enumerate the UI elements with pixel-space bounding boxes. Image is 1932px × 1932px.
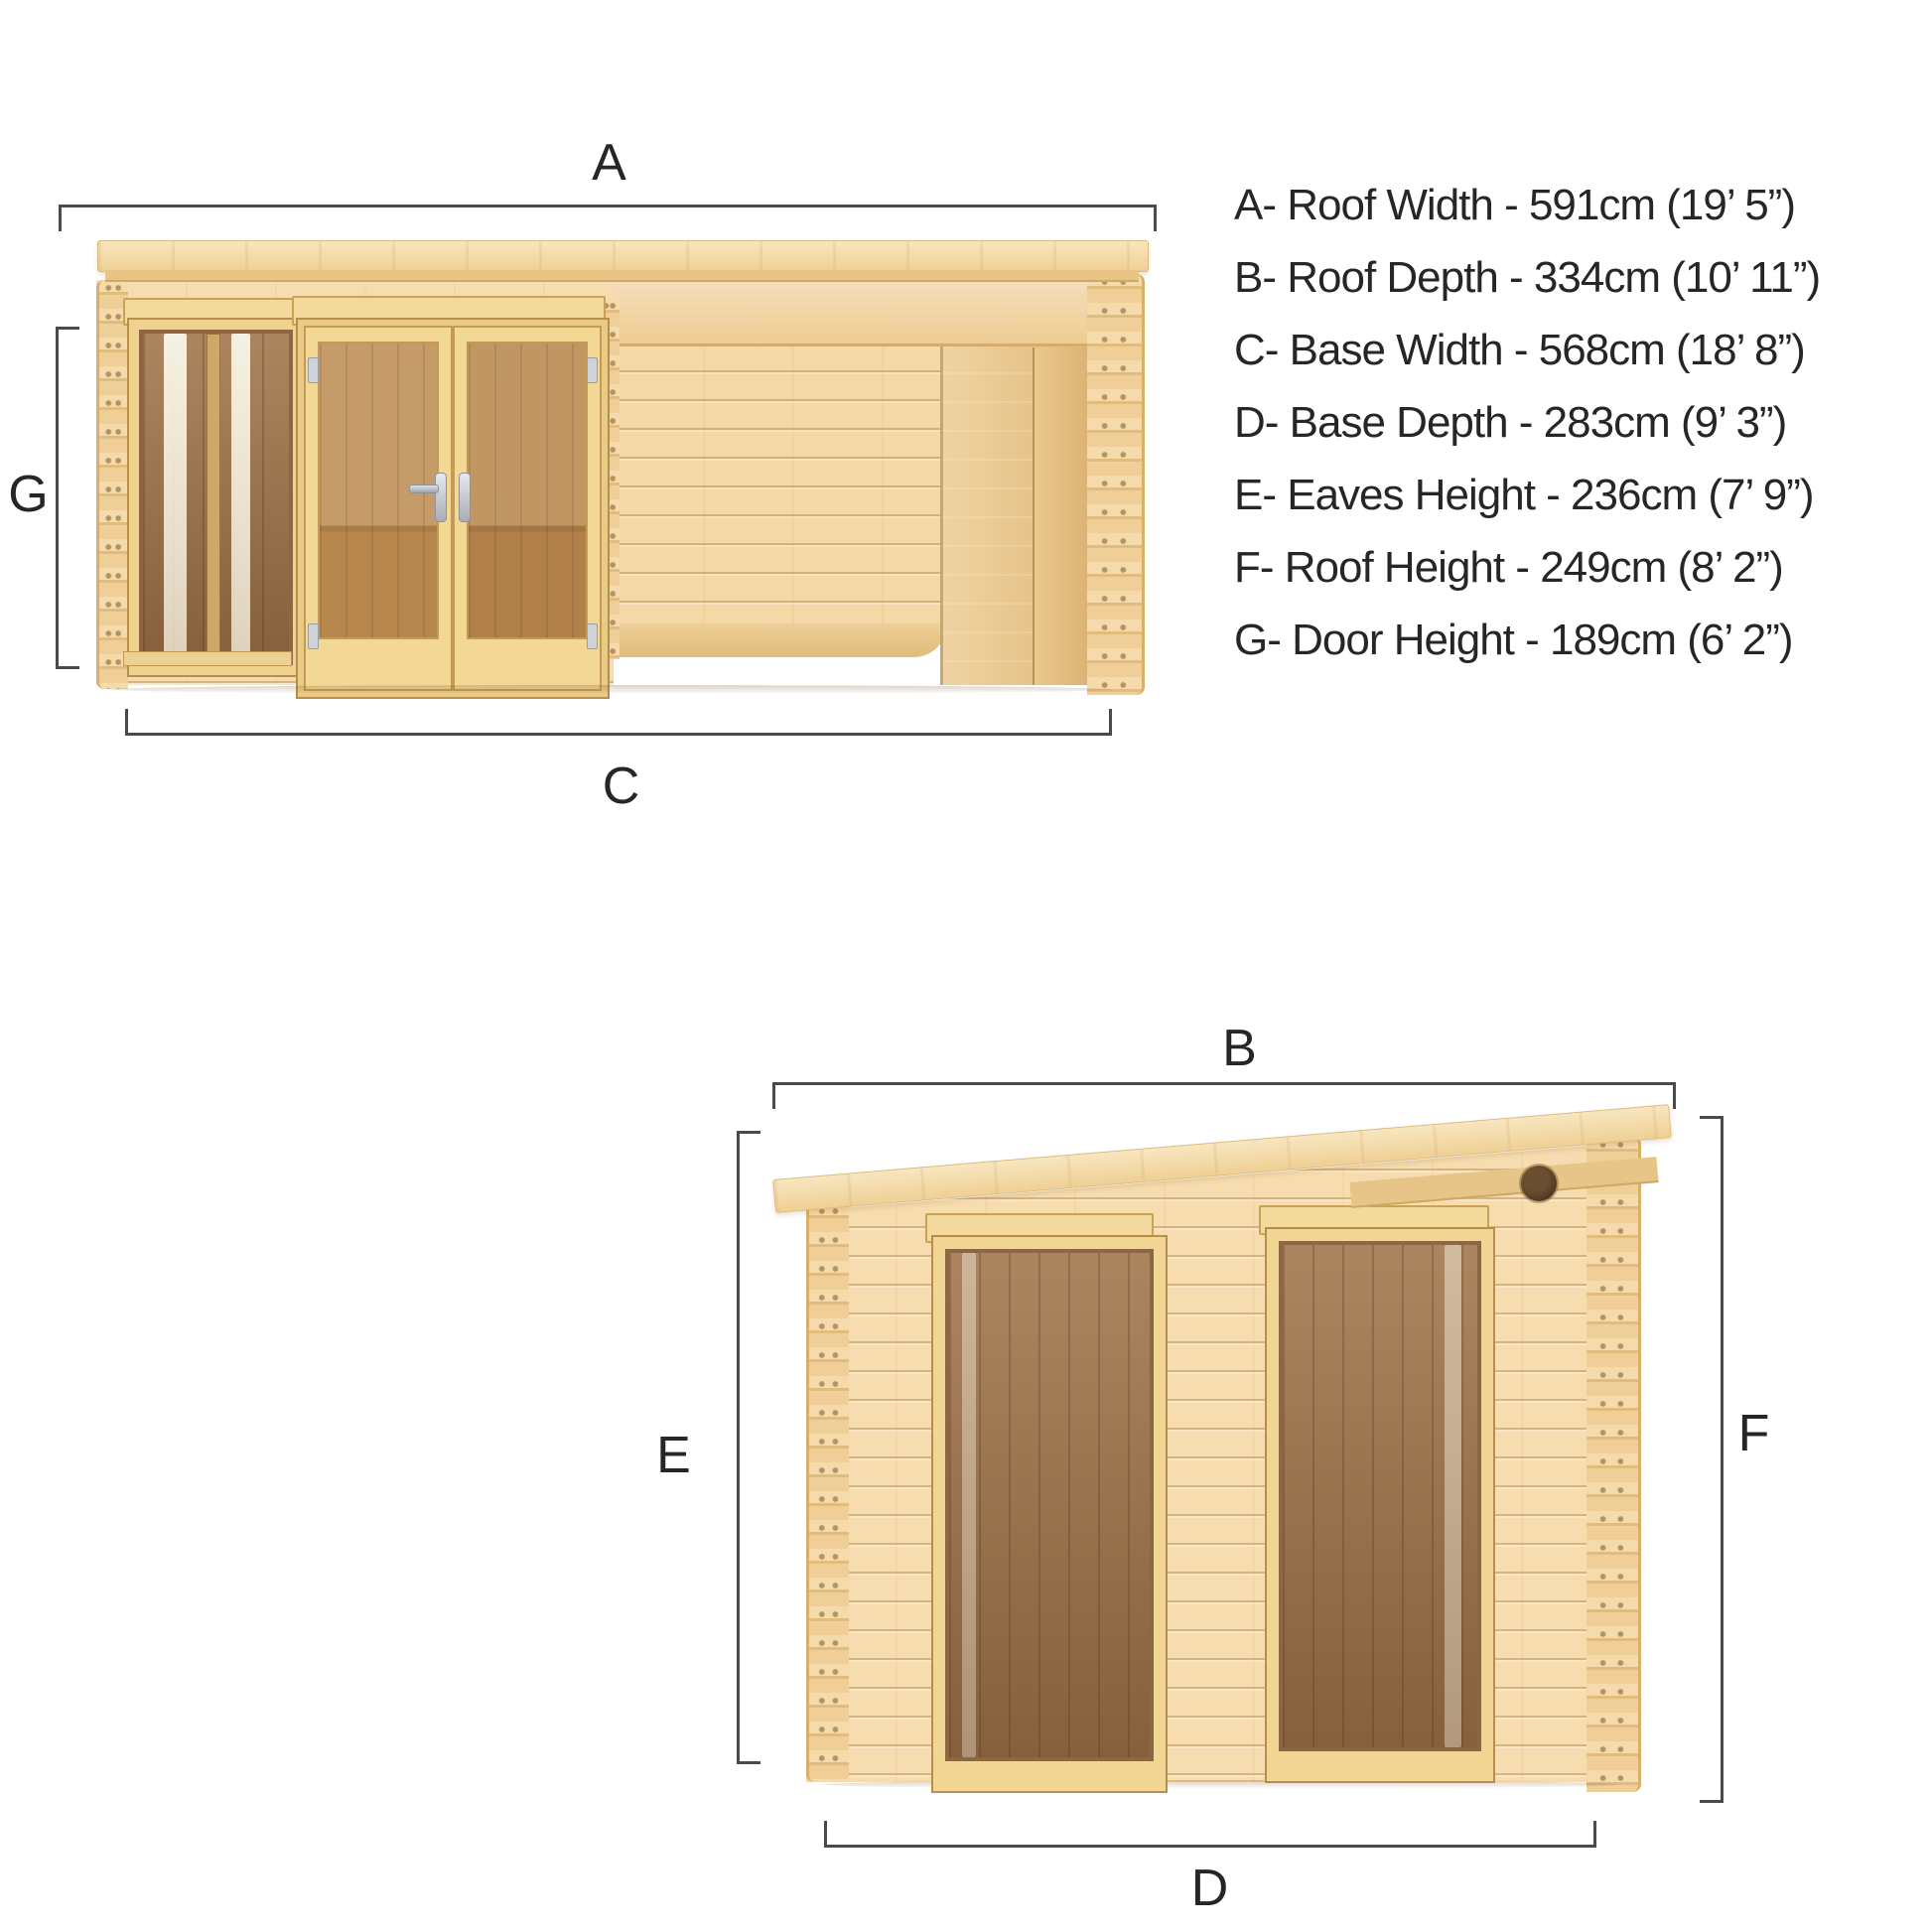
spec-line-roof-width: A- Roof Width - 591cm (19’ 5”) (1234, 169, 1929, 241)
window-glass (949, 1253, 1150, 1757)
roof-vent-icon (1521, 1166, 1557, 1201)
spec-line-eaves-height: E- Eaves Height - 236cm (7’ 9”) (1234, 459, 1929, 531)
glass-reflection (1445, 1245, 1460, 1747)
glass-reflection (962, 1253, 977, 1757)
dim-line-roof-height (1721, 1116, 1724, 1803)
dim-line-roof-depth (772, 1082, 1676, 1085)
spec-line-roof-height: F- Roof Height - 249cm (8’ 2”) (1234, 531, 1929, 604)
spec-line-base-width: C- Base Width - 568cm (18’ 8”) (1234, 314, 1929, 386)
dim-line-eaves-height (737, 1131, 740, 1764)
spec-line-door-height: G- Door Height - 189cm (6’ 2”) (1234, 604, 1929, 676)
side-window-1 (933, 1237, 1166, 1791)
dimension-diagram-page: A G C B E F (0, 0, 1932, 1932)
side-window-2 (1267, 1229, 1493, 1781)
spec-line-roof-depth: B- Roof Depth - 334cm (10’ 11”) (1234, 241, 1929, 314)
dim-line-base-depth (824, 1845, 1596, 1848)
spec-line-base-depth: D- Base Depth - 283cm (9’ 3”) (1234, 386, 1929, 459)
log-end-column-left (806, 1203, 849, 1782)
spec-list: A- Roof Width - 591cm (19’ 5”) B- Roof D… (1234, 169, 1929, 676)
log-end-column-right (1587, 1137, 1641, 1792)
